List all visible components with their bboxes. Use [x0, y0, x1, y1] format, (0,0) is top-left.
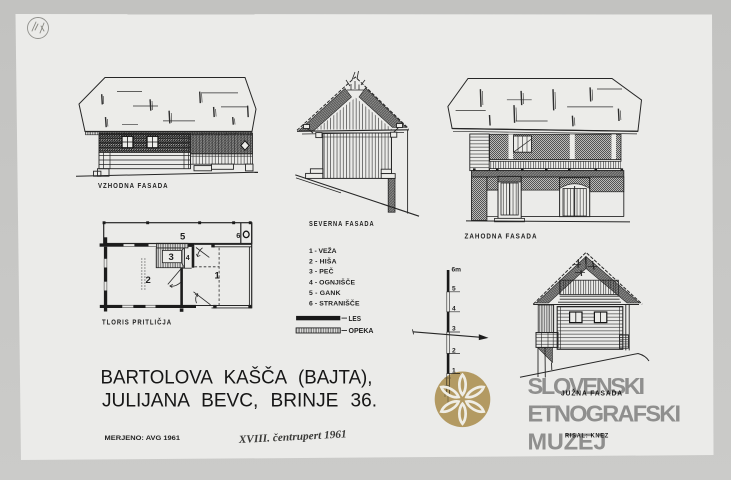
svg-text:JULIJANA BEVC, BRINJE 36.: JULIJANA BEVC, BRINJE 36.	[102, 390, 377, 412]
svg-text:6: 6	[236, 231, 240, 240]
svg-text:2 - HIŠA: 2 - HIŠA	[309, 256, 337, 265]
svg-text:LES: LES	[349, 316, 362, 323]
svg-text:5 - GANK: 5 - GANK	[309, 290, 341, 297]
svg-text:5: 5	[452, 286, 456, 293]
svg-text:ZAHODNA FASADA: ZAHODNA FASADA	[465, 232, 538, 241]
svg-text:SLOVENSKI: SLOVENSKI	[528, 373, 646, 399]
svg-text:4 - OGNJIŠČE: 4 - OGNJIŠČE	[309, 277, 356, 286]
svg-text:3: 3	[452, 326, 456, 333]
svg-text:3: 3	[169, 252, 174, 263]
svg-text:XVIII. čentrupert 1961: XVIII. čentrupert 1961	[238, 428, 348, 446]
svg-text:SEVERNA FASADA: SEVERNA FASADA	[309, 219, 375, 228]
svg-text:1: 1	[215, 271, 221, 282]
svg-text:1 - VEŽA: 1 - VEŽA	[309, 246, 337, 255]
svg-text:MUZEJ: MUZEJ	[528, 428, 607, 454]
svg-text:MERJENO: AVG 1961: MERJENO: AVG 1961	[105, 435, 181, 442]
svg-text:3 - PEČ: 3 - PEČ	[309, 267, 334, 276]
svg-text:2: 2	[452, 347, 456, 354]
svg-text:5: 5	[180, 232, 186, 243]
svg-text:6 - STRANIŠČE: 6 - STRANIŠČE	[309, 298, 360, 307]
svg-text:OPEKA: OPEKA	[349, 328, 374, 335]
svg-text:2: 2	[146, 275, 151, 286]
svg-text:4: 4	[452, 306, 456, 313]
svg-text:6m: 6m	[452, 267, 462, 274]
svg-text:VZHODNA FASADA: VZHODNA FASADA	[98, 181, 169, 190]
svg-text:BARTOLOVA KAŠČA (BAJTA),: BARTOLOVA KAŠČA (BAJTA),	[101, 365, 373, 388]
svg-text:TLORIS PRITLIČJA: TLORIS PRITLIČJA	[102, 318, 172, 327]
svg-text:4: 4	[186, 255, 190, 262]
svg-text:ETNOGRAFSKI: ETNOGRAFSKI	[528, 401, 682, 427]
